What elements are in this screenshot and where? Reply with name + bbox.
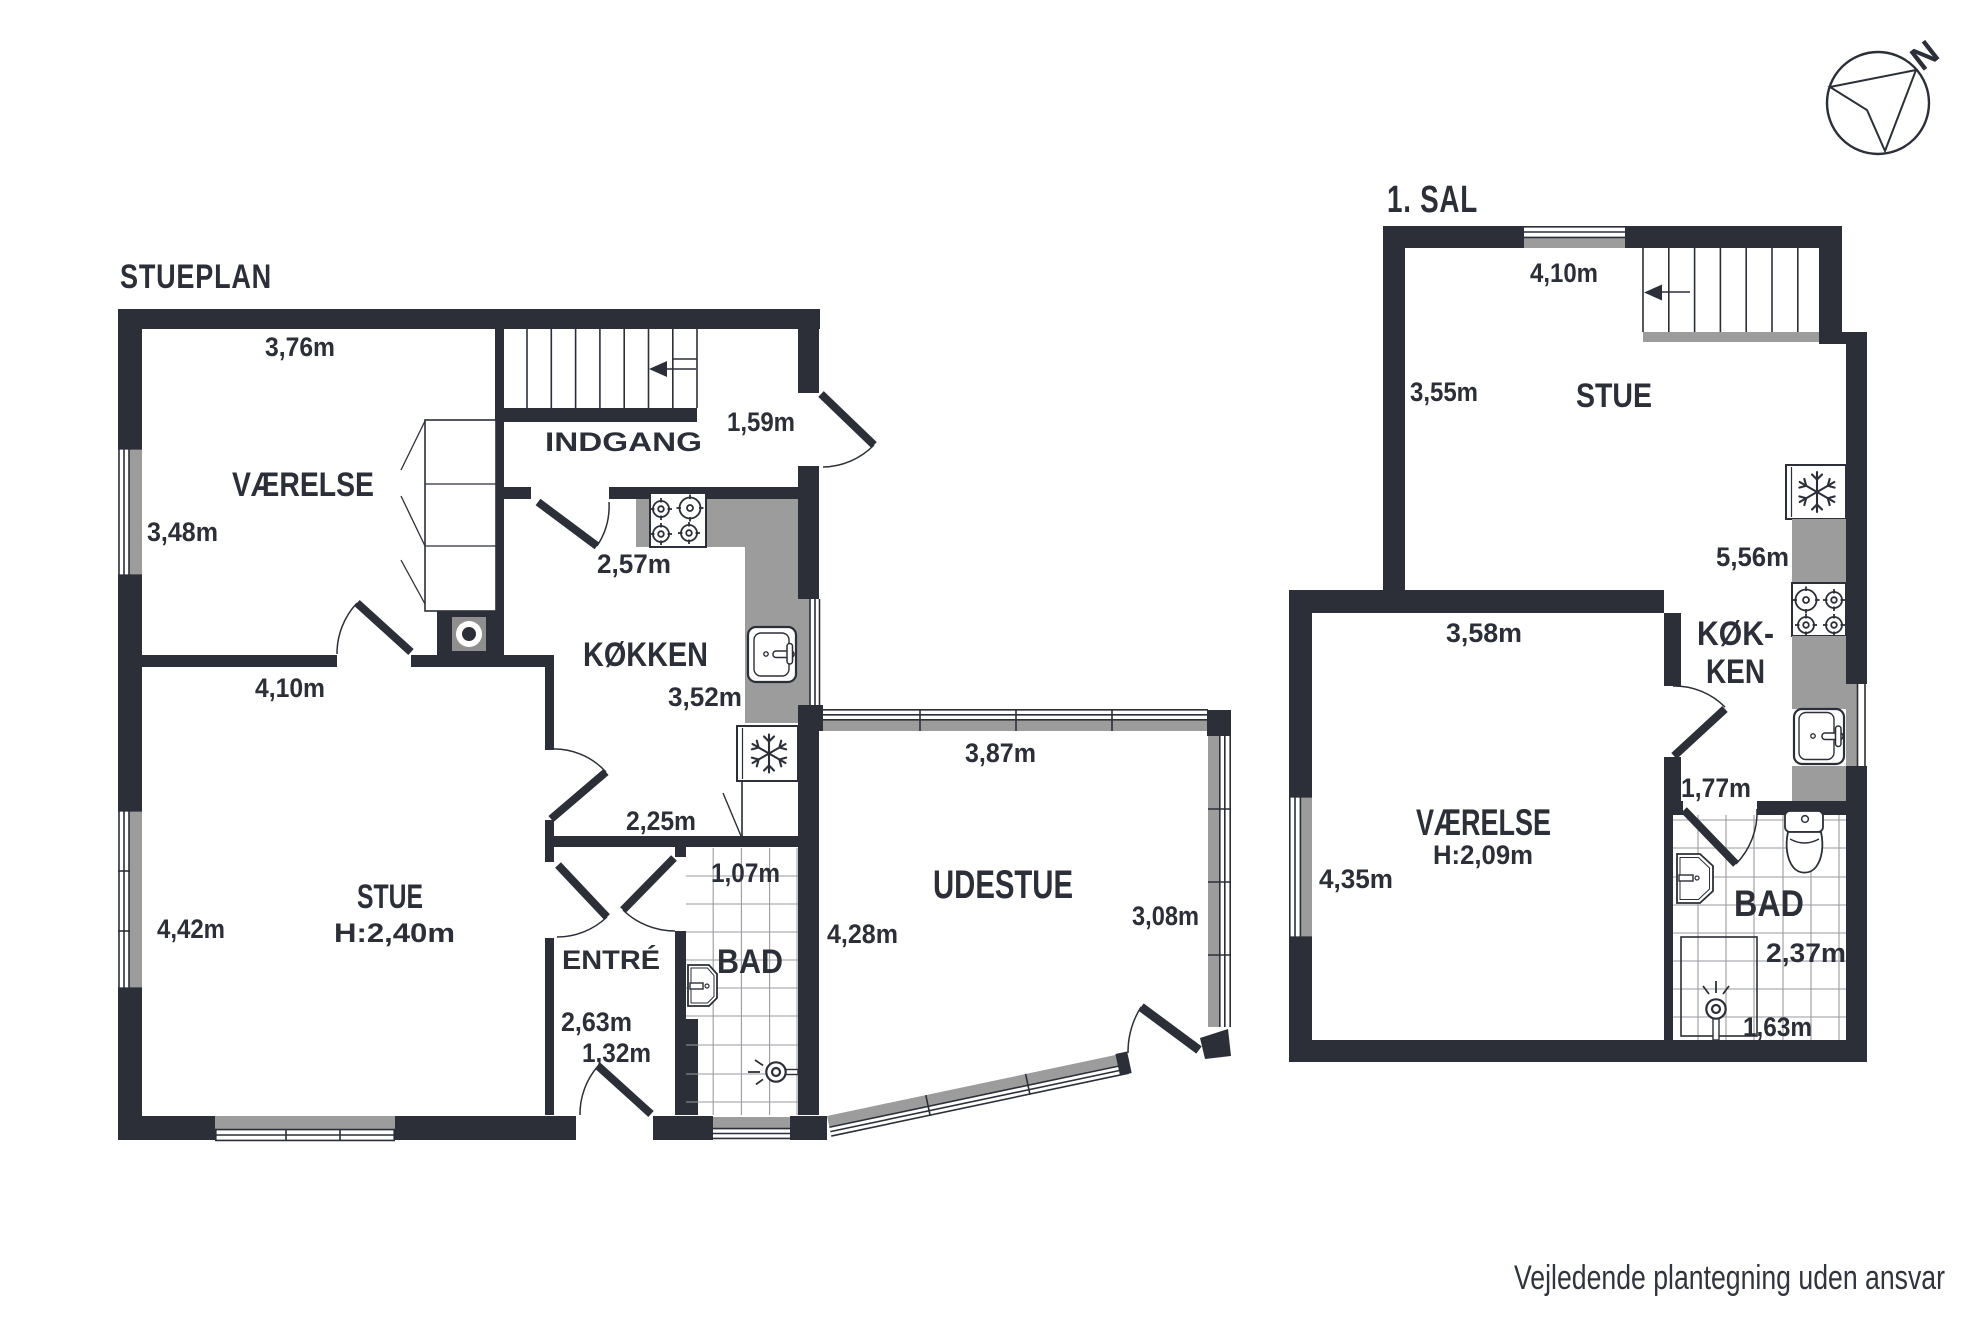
svg-text:4,10m: 4,10m <box>255 673 325 703</box>
svg-text:3,55m: 3,55m <box>1410 377 1478 407</box>
svg-text:2,37m: 2,37m <box>1766 938 1846 968</box>
svg-text:5,56m: 5,56m <box>1716 542 1789 572</box>
svg-text:Vejledende plantegning uden an: Vejledende plantegning uden ansvar <box>1514 1259 1945 1297</box>
svg-text:1,59m: 1,59m <box>727 407 795 437</box>
svg-text:H:2,09m: H:2,09m <box>1433 840 1533 870</box>
svg-text:STUE: STUE <box>357 878 423 916</box>
svg-text:BAD: BAD <box>717 943 783 981</box>
svg-text:VÆRELSE: VÆRELSE <box>232 466 374 504</box>
svg-text:2,57m: 2,57m <box>597 549 671 579</box>
svg-text:3,58m: 3,58m <box>1446 618 1522 648</box>
svg-text:3,87m: 3,87m <box>965 738 1036 768</box>
svg-text:BAD: BAD <box>1734 883 1804 924</box>
svg-text:ENTRÉ: ENTRÉ <box>562 944 660 975</box>
svg-text:4,35m: 4,35m <box>1319 864 1393 894</box>
svg-text:STUEPLAN: STUEPLAN <box>120 258 272 296</box>
svg-text:3,48m: 3,48m <box>147 517 218 547</box>
svg-text:UDESTUE: UDESTUE <box>933 863 1073 907</box>
svg-text:3,76m: 3,76m <box>265 332 335 362</box>
svg-text:KØK-: KØK- <box>1697 615 1774 653</box>
svg-text:KEN: KEN <box>1706 653 1765 691</box>
svg-text:3,08m: 3,08m <box>1132 901 1199 931</box>
svg-text:1,63m: 1,63m <box>1743 1012 1812 1042</box>
svg-text:1,07m: 1,07m <box>711 858 780 888</box>
svg-text:2,25m: 2,25m <box>626 806 696 836</box>
svg-text:KØKKEN: KØKKEN <box>583 636 708 674</box>
svg-text:VÆRELSE: VÆRELSE <box>1416 802 1551 843</box>
svg-text:1,32m: 1,32m <box>582 1038 651 1068</box>
svg-text:1. SAL: 1. SAL <box>1387 179 1478 221</box>
svg-text:2,63m: 2,63m <box>561 1007 632 1037</box>
svg-text:4,28m: 4,28m <box>827 919 898 949</box>
svg-text:3,52m: 3,52m <box>668 682 742 712</box>
svg-text:4,10m: 4,10m <box>1530 258 1598 288</box>
svg-text:INDGANG: INDGANG <box>545 427 702 457</box>
svg-text:STUE: STUE <box>1576 377 1652 415</box>
svg-text:H:2,40m: H:2,40m <box>334 918 455 948</box>
svg-text:4,42m: 4,42m <box>157 914 225 944</box>
svg-text:1,77m: 1,77m <box>1681 773 1751 803</box>
